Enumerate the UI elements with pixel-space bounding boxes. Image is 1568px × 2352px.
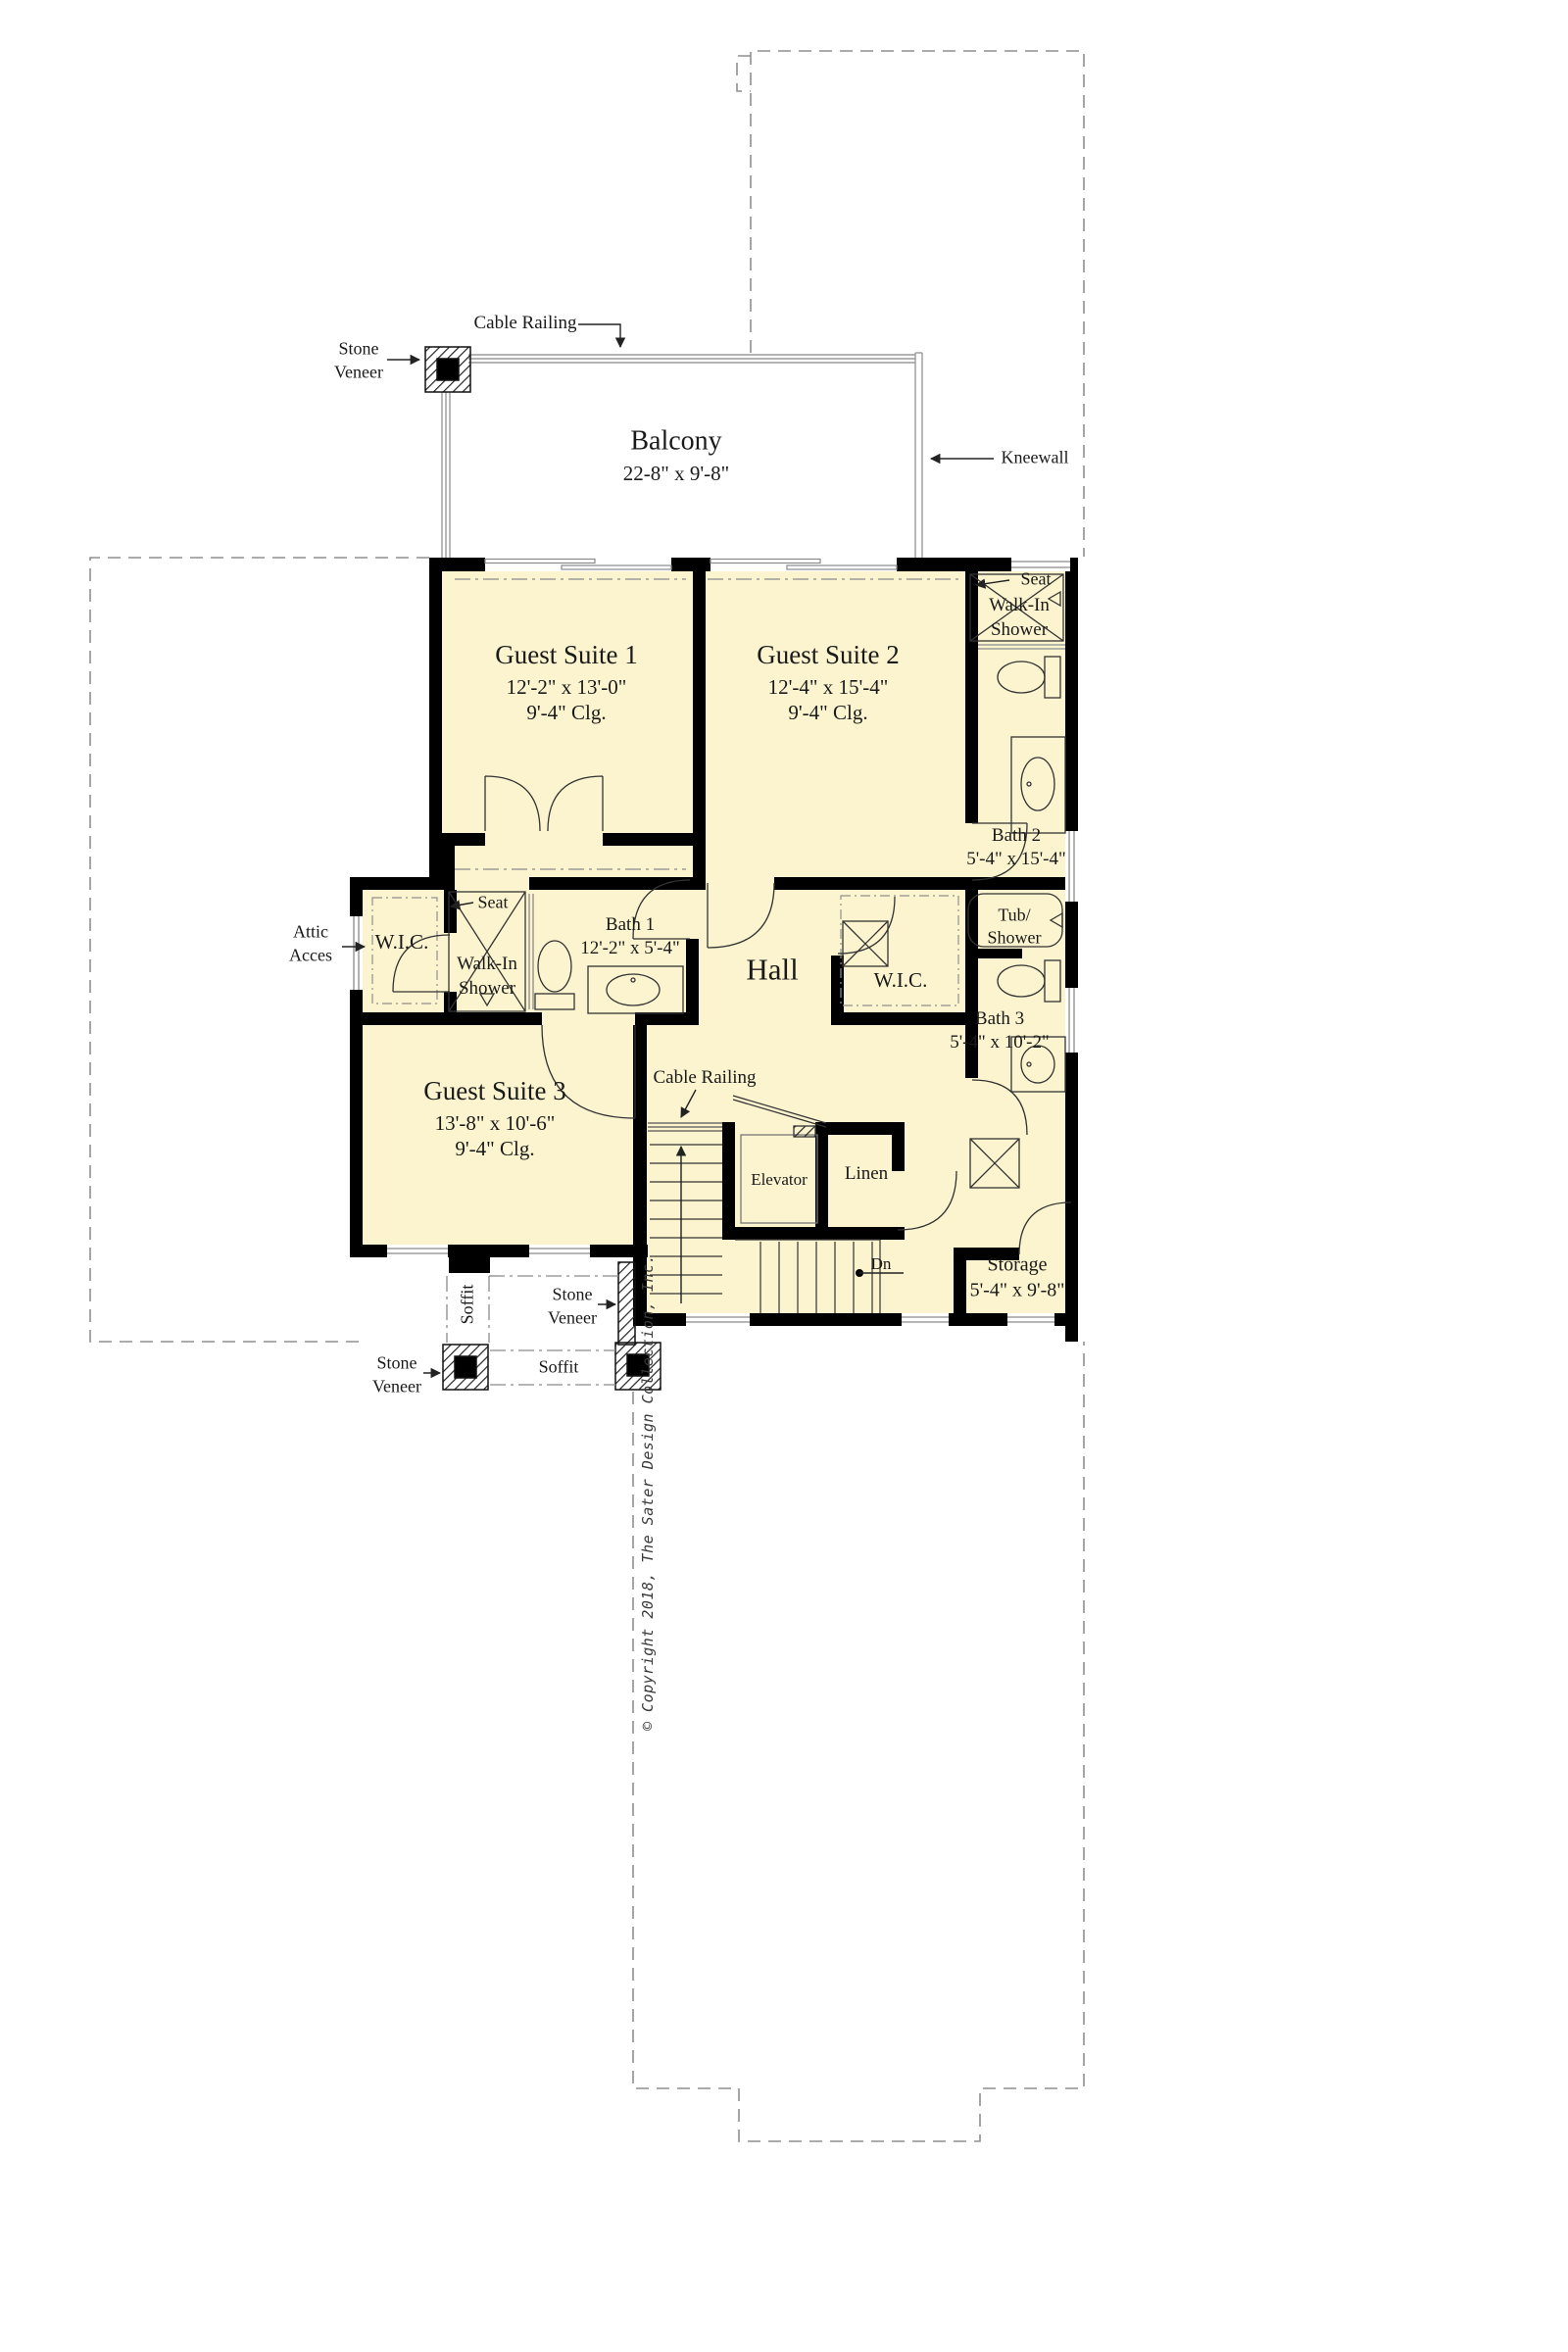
balcony-dims: 22-8" x 9'-8"	[623, 463, 729, 484]
balcony-label: Balcony	[630, 426, 721, 455]
seat-top-right-label: Seat	[1021, 570, 1052, 589]
soffit-horizontal-label: Soffit	[539, 1358, 579, 1377]
bath3-name: Bath 3	[975, 1009, 1024, 1029]
guest-suite-3-clg: 9'-4" Clg.	[455, 1138, 534, 1159]
stone-veneer-top-label-1: Stone	[338, 340, 378, 359]
hall-label: Hall	[746, 955, 798, 987]
stone-veneer-bottom-label-2: Veneer	[372, 1378, 421, 1396]
window-bottom-1	[686, 1313, 750, 1326]
bath1-dims: 12'-2" x 5'-4"	[580, 939, 680, 958]
cable-railing-top-leader	[578, 324, 620, 347]
linen-label: Linen	[845, 1164, 888, 1184]
stone-veneer-top-label-2: Veneer	[334, 364, 383, 382]
wic-right-label: W.I.C.	[874, 969, 928, 991]
walkin-shower-tr-label-1: Walk-In	[989, 596, 1050, 615]
bath2-name: Bath 2	[992, 826, 1041, 846]
guest-suite-2-dims: 12'-4" x 15'-4"	[768, 676, 889, 698]
elevator-label: Elevator	[751, 1171, 808, 1189]
stone-veneer-bottom-label-1: Stone	[376, 1354, 416, 1373]
bath2-dims: 5'-4" x 15'-4"	[966, 850, 1066, 869]
tub-shower-label-1: Tub/	[998, 906, 1030, 925]
guest-suite-1-clg: 9'-4" Clg.	[526, 702, 606, 723]
wic-left-label: W.I.C.	[375, 931, 429, 953]
tub-shower-label-2: Shower	[988, 929, 1042, 948]
cable-railing-stair-label: Cable Railing	[653, 1068, 756, 1088]
window-bottom-2	[902, 1313, 949, 1326]
stone-veneer-mid-label-1: Stone	[552, 1286, 592, 1304]
attic-access-label-2: Acces	[289, 947, 332, 965]
guest-suite-3-name: Guest Suite 3	[423, 1077, 566, 1104]
attic-access-label-1: Attic	[293, 923, 328, 942]
window-gs3-right	[529, 1245, 590, 1257]
storage-dims: 5'-4" x 9'-8"	[970, 1281, 1065, 1301]
guest-suite-1-name: Guest Suite 1	[495, 641, 638, 668]
stone-veneer-mid-label-2: Veneer	[548, 1309, 597, 1328]
bath3-dims: 5'-4" x 10'-2"	[950, 1033, 1050, 1053]
guest-suite-2-name: Guest Suite 2	[757, 641, 900, 668]
window-right-bath2	[1065, 831, 1078, 902]
guest-suite-2-clg: 9'-4" Clg.	[788, 702, 867, 723]
dn-label: Dn	[871, 1255, 892, 1273]
walkin-shower-tr-label-2: Shower	[991, 620, 1048, 640]
walkin-shower-left-label-2: Shower	[459, 979, 515, 999]
guest-suite-1-dims: 12'-2" x 13'-0"	[507, 676, 627, 698]
guest-suite-3-dims: 13'-8" x 10'-6"	[435, 1112, 556, 1134]
cable-railing-top-label: Cable Railing	[473, 314, 576, 333]
window-right-bath3	[1065, 988, 1078, 1053]
bath1-name: Bath 1	[606, 915, 655, 935]
seat-left-label: Seat	[478, 894, 509, 912]
floor-plan-canvas: Cable Railing Stone Veneer Balcony 22-8"…	[0, 0, 1568, 2352]
copyright-notice: © Copyright 2018, The Sater Design Colle…	[639, 1254, 657, 1731]
soffit-vertical-label: Soffit	[459, 1285, 477, 1325]
sliding-door-2	[710, 558, 897, 571]
window-gs3-left	[387, 1245, 448, 1257]
storage-name: Storage	[987, 1255, 1047, 1276]
window-bottom-3	[1007, 1313, 1054, 1326]
sliding-door-1	[485, 558, 671, 571]
kneewall-label: Kneewall	[1002, 449, 1069, 467]
walkin-shower-left-label-1: Walk-In	[457, 955, 517, 974]
attic-access-hatch	[350, 916, 363, 990]
